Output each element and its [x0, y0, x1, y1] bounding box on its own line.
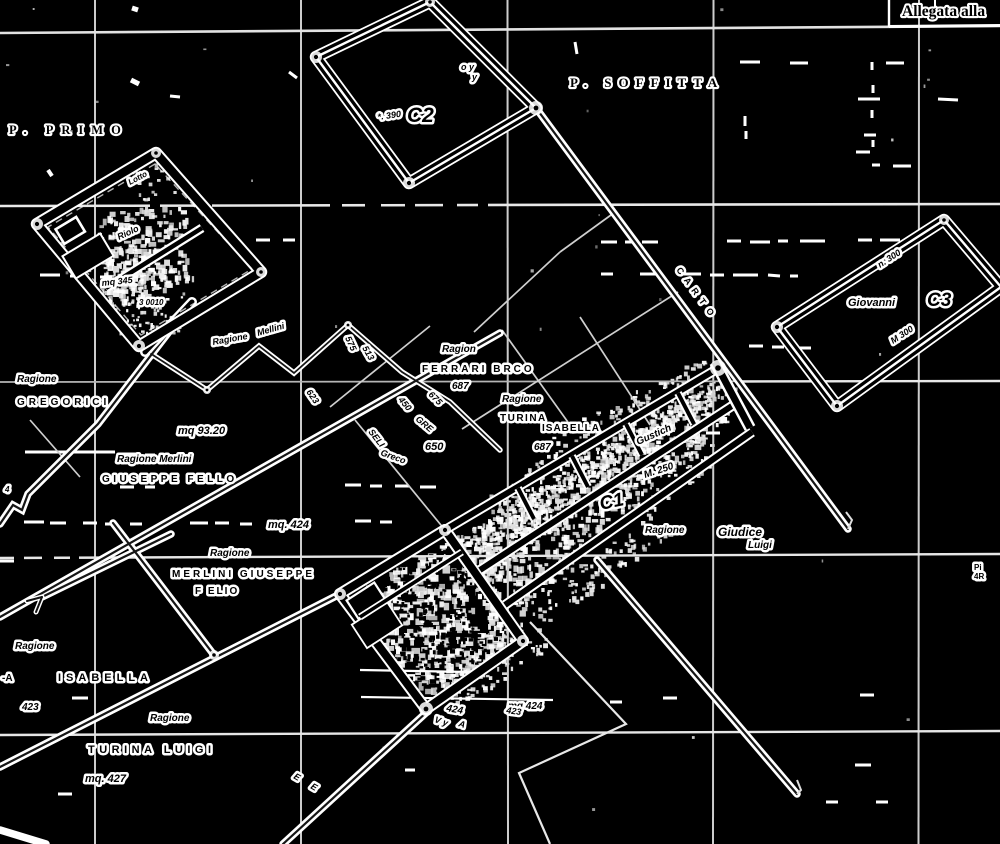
svg-text:GIUSEPPE FELLO: GIUSEPPE FELLO: [102, 474, 238, 485]
svg-text:-A: -A: [2, 673, 13, 684]
svg-text:Giudice: Giudice: [718, 525, 762, 539]
svg-text:FERRARI BRCO: FERRARI BRCO: [422, 364, 535, 375]
svg-text:o y: o y: [461, 62, 475, 72]
svg-text:F ELIO: F ELIO: [195, 586, 239, 597]
svg-text:TURINA: TURINA: [500, 413, 547, 424]
svg-text:y: y: [471, 72, 478, 82]
svg-text:Ragione Merlini: Ragione Merlini: [117, 454, 192, 465]
svg-text:Ragione: Ragione: [645, 525, 685, 536]
svg-text:687: 687: [452, 381, 469, 392]
svg-text:TURINA LUIGI: TURINA LUIGI: [88, 744, 216, 756]
svg-text:Ragione: Ragione: [15, 641, 55, 652]
svg-text:Ragione: Ragione: [210, 548, 250, 559]
svg-text:GREGORICI: GREGORICI: [17, 397, 110, 408]
svg-text:ISABELLA: ISABELLA: [542, 423, 600, 434]
svg-text:P. SOFFITTA: P. SOFFITTA: [570, 75, 724, 90]
svg-text:Ragione: Ragione: [17, 374, 57, 385]
svg-text:mq 93.20: mq 93.20: [178, 425, 226, 437]
svg-text:Ragion: Ragion: [442, 344, 476, 355]
svg-text:687: 687: [534, 442, 551, 453]
svg-text:Luigi: Luigi: [748, 540, 772, 551]
svg-text:3 0010: 3 0010: [139, 298, 164, 307]
svg-text:mq. 424: mq. 424: [268, 519, 309, 531]
svg-text:Giovanni: Giovanni: [848, 297, 896, 309]
svg-text:C2: C2: [407, 104, 434, 127]
svg-text:4R: 4R: [974, 572, 984, 581]
svg-text:MERLINI GIUSEPPE: MERLINI GIUSEPPE: [172, 569, 315, 580]
svg-text:Allegata alla: Allegata alla: [902, 3, 985, 20]
svg-text:mq. 427: mq. 427: [85, 773, 127, 785]
svg-text:4: 4: [4, 485, 10, 494]
svg-text:Ragione: Ragione: [502, 394, 542, 405]
svg-text:423: 423: [21, 702, 39, 713]
svg-text:650: 650: [425, 441, 444, 453]
svg-text:C3: C3: [927, 290, 952, 311]
svg-text:Ragione: Ragione: [150, 713, 190, 724]
svg-text:P. PRIMO: P. PRIMO: [9, 123, 129, 137]
svg-text:ISABELLA: ISABELLA: [58, 672, 153, 684]
svg-text:Pi: Pi: [974, 563, 982, 572]
